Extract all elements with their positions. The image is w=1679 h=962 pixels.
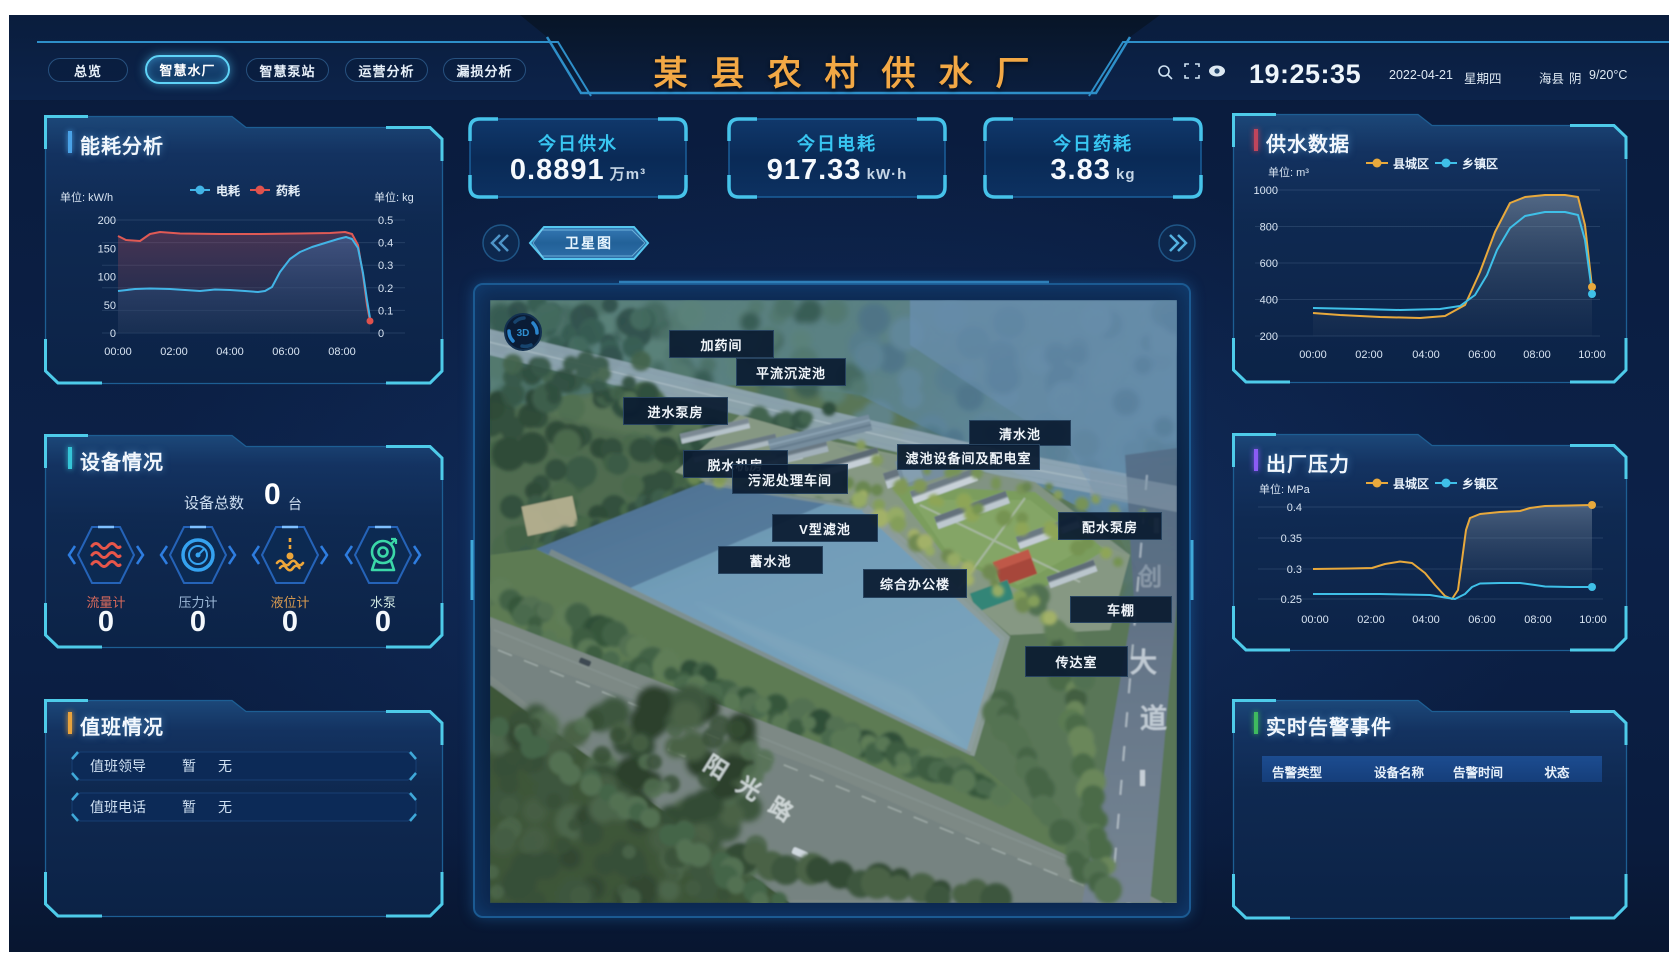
svg-text:单位: kW/h: 单位: kW/h <box>60 190 113 204</box>
svg-text:0.3: 0.3 <box>1287 564 1302 576</box>
svg-text:无: 无 <box>218 758 232 774</box>
svg-text:08:00: 08:00 <box>1524 614 1552 626</box>
svg-text:暂: 暂 <box>182 758 196 774</box>
svg-text:单位: kg: 单位: kg <box>374 190 414 204</box>
svg-text:06:00: 06:00 <box>1468 614 1496 626</box>
svg-text:400: 400 <box>1260 295 1278 307</box>
svg-text:乡镇区: 乡镇区 <box>1462 476 1498 491</box>
svg-text:0.25: 0.25 <box>1281 594 1302 606</box>
svg-text:08:00: 08:00 <box>328 346 356 358</box>
svg-text:0.2: 0.2 <box>378 283 393 295</box>
svg-text:150: 150 <box>98 243 116 255</box>
svg-text:电耗: 电耗 <box>216 183 240 198</box>
svg-text:0.1: 0.1 <box>378 305 393 317</box>
svg-text:值班领导: 值班领导 <box>90 758 146 774</box>
svg-text:00:00: 00:00 <box>104 346 132 358</box>
svg-text:50: 50 <box>104 300 116 312</box>
svg-text:乡镇区: 乡镇区 <box>1462 156 1498 171</box>
svg-text:无: 无 <box>218 799 232 815</box>
svg-text:县城区: 县城区 <box>1393 476 1429 491</box>
svg-text:卫星图: 卫星图 <box>565 235 613 251</box>
svg-text:04:00: 04:00 <box>1412 614 1440 626</box>
svg-text:100: 100 <box>98 272 116 284</box>
svg-text:04:00: 04:00 <box>1412 349 1440 361</box>
svg-text:02:00: 02:00 <box>1357 614 1385 626</box>
svg-text:0.3: 0.3 <box>378 260 393 272</box>
svg-text:04:00: 04:00 <box>216 346 244 358</box>
svg-text:200: 200 <box>98 215 116 227</box>
svg-text:0: 0 <box>378 328 384 340</box>
svg-text:暂: 暂 <box>182 799 196 815</box>
svg-text:药耗: 药耗 <box>276 183 300 198</box>
svg-text:值班电话: 值班电话 <box>90 799 146 815</box>
svg-text:10:00: 10:00 <box>1579 614 1607 626</box>
svg-text:800: 800 <box>1260 222 1278 234</box>
svg-text:08:00: 08:00 <box>1523 349 1551 361</box>
svg-text:200: 200 <box>1260 331 1278 343</box>
svg-text:0.35: 0.35 <box>1281 533 1302 545</box>
svg-text:3D: 3D <box>517 328 530 339</box>
svg-text:00:00: 00:00 <box>1299 349 1327 361</box>
svg-text:1000: 1000 <box>1254 185 1278 197</box>
svg-text:02:00: 02:00 <box>1355 349 1383 361</box>
svg-text:县城区: 县城区 <box>1393 156 1429 171</box>
svg-text:单位: MPa: 单位: MPa <box>1259 482 1311 496</box>
svg-text:10:00: 10:00 <box>1578 349 1606 361</box>
svg-text:0: 0 <box>110 328 116 340</box>
svg-text:600: 600 <box>1260 258 1278 270</box>
svg-text:06:00: 06:00 <box>1468 349 1496 361</box>
svg-text:0.5: 0.5 <box>378 215 393 227</box>
svg-text:02:00: 02:00 <box>160 346 188 358</box>
svg-text:06:00: 06:00 <box>272 346 300 358</box>
svg-text:0.4: 0.4 <box>378 238 393 250</box>
svg-text:单位: m³: 单位: m³ <box>1268 165 1309 179</box>
svg-text:00:00: 00:00 <box>1301 614 1329 626</box>
svg-text:0.4: 0.4 <box>1287 502 1302 514</box>
